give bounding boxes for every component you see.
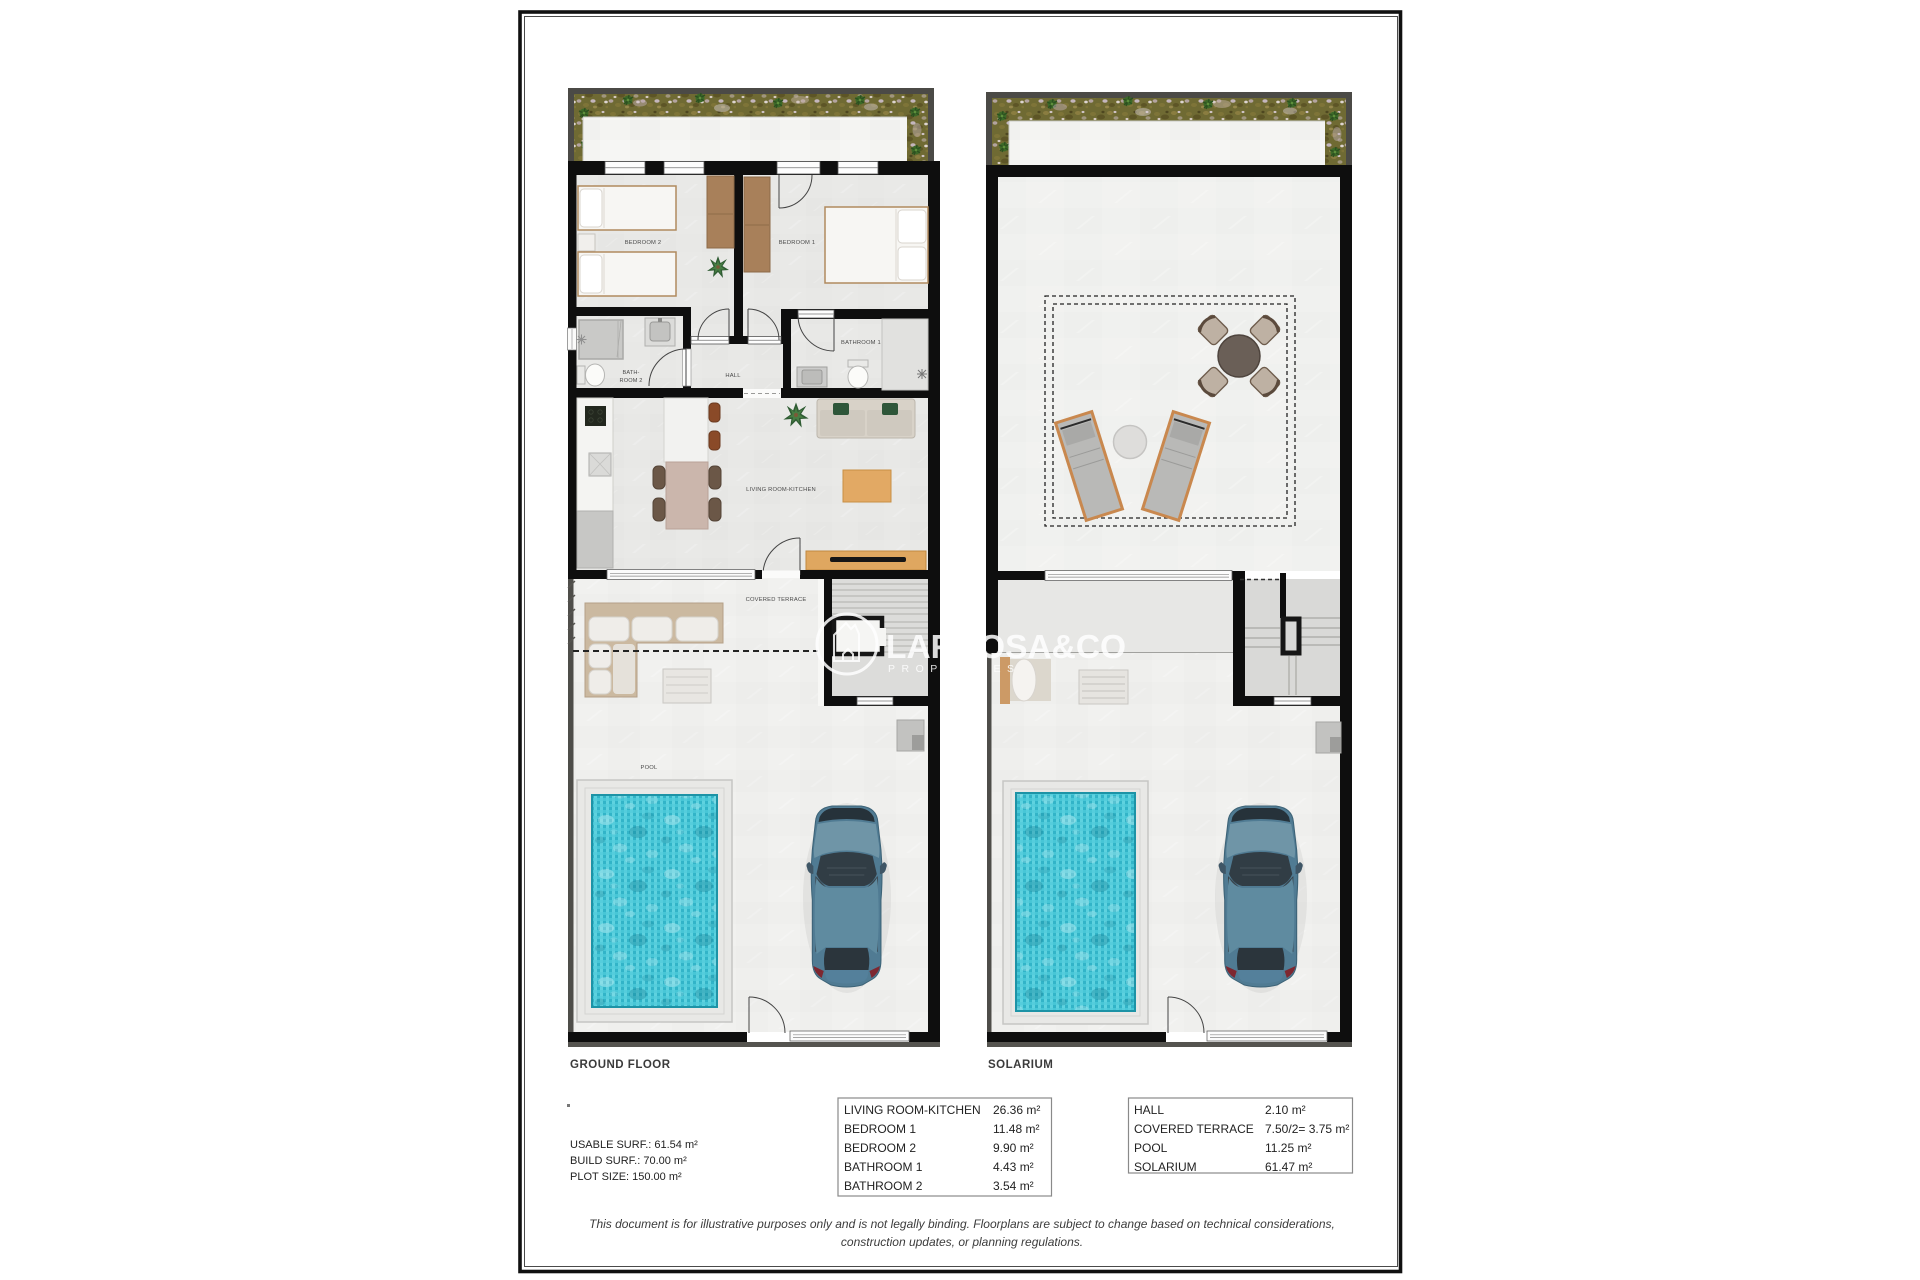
svg-text:BEDROOM 1: BEDROOM 1 bbox=[844, 1122, 916, 1136]
svg-text:7.50/2= 3.75 m²: 7.50/2= 3.75 m² bbox=[1265, 1122, 1349, 1136]
svg-text:61.47 m²: 61.47 m² bbox=[1265, 1160, 1312, 1174]
svg-text:BEDROOM 1: BEDROOM 1 bbox=[779, 240, 816, 246]
svg-text:LIVING ROOM-KITCHEN: LIVING ROOM-KITCHEN bbox=[844, 1103, 981, 1117]
svg-text:COVERED TERRACE: COVERED TERRACE bbox=[1134, 1122, 1254, 1136]
svg-text:BATHROOM 1: BATHROOM 1 bbox=[841, 340, 881, 346]
svg-text:9.90 m²: 9.90 m² bbox=[993, 1141, 1034, 1155]
svg-text:BEDROOM 2: BEDROOM 2 bbox=[844, 1141, 916, 1155]
svg-text:POOL: POOL bbox=[1134, 1141, 1168, 1155]
svg-text:construction updates, or plann: construction updates, or planning regula… bbox=[841, 1235, 1083, 1249]
svg-text:This document is for illustrat: This document is for illustrative purpos… bbox=[589, 1217, 1335, 1231]
svg-text:BEDROOM 2: BEDROOM 2 bbox=[625, 240, 662, 246]
svg-text:PROPERTIES: PROPERTIES bbox=[888, 663, 1021, 675]
svg-text:ROOM 2: ROOM 2 bbox=[620, 378, 643, 384]
svg-text:26.36 m²: 26.36 m² bbox=[993, 1103, 1040, 1117]
svg-text:COVERED TERRACE: COVERED TERRACE bbox=[746, 597, 807, 603]
svg-text:BATHROOM 2: BATHROOM 2 bbox=[844, 1179, 923, 1193]
svg-text:11.25 m²: 11.25 m² bbox=[1265, 1141, 1311, 1155]
svg-text:BUILD SURF.: 70.00 m²: BUILD SURF.: 70.00 m² bbox=[570, 1155, 687, 1167]
svg-text:LIVING ROOM-KITCHEN: LIVING ROOM-KITCHEN bbox=[746, 487, 816, 493]
svg-text:SOLARIUM: SOLARIUM bbox=[988, 1059, 1053, 1071]
svg-text:LARROSA&CO: LARROSA&CO bbox=[886, 629, 1126, 666]
svg-text:3.54 m²: 3.54 m² bbox=[993, 1179, 1034, 1193]
svg-text:GROUND FLOOR: GROUND FLOOR bbox=[570, 1059, 671, 1071]
svg-text:BATH-: BATH- bbox=[622, 370, 639, 376]
svg-text:11.48 m²: 11.48 m² bbox=[993, 1122, 1039, 1136]
svg-text:BATHROOM 1: BATHROOM 1 bbox=[844, 1160, 923, 1174]
svg-text:POOL: POOL bbox=[641, 765, 658, 771]
svg-text:2.10 m²: 2.10 m² bbox=[1265, 1103, 1306, 1117]
svg-text:USABLE SURF.: 61.54 m²: USABLE SURF.: 61.54 m² bbox=[570, 1139, 698, 1151]
svg-text:PLOT SIZE: 150.00 m²: PLOT SIZE: 150.00 m² bbox=[570, 1171, 682, 1183]
svg-text:4.43 m²: 4.43 m² bbox=[993, 1160, 1034, 1174]
svg-text:HALL: HALL bbox=[1134, 1103, 1164, 1117]
svg-text:HALL: HALL bbox=[725, 373, 741, 379]
svg-text:SOLARIUM: SOLARIUM bbox=[1134, 1160, 1197, 1174]
